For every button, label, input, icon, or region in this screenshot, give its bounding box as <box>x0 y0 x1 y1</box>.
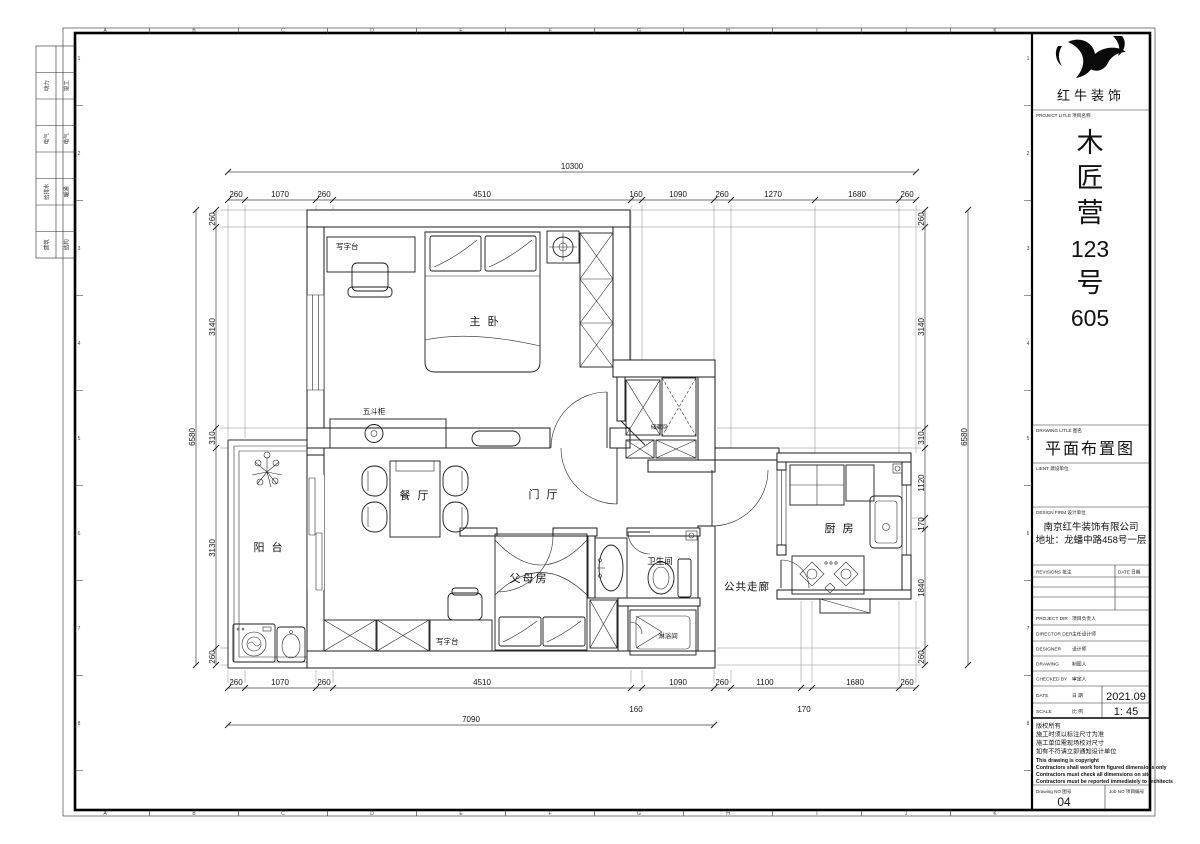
ceiling-light <box>547 231 579 263</box>
stamp-label: 电气 <box>62 133 70 145</box>
grid-letter: F <box>548 811 551 817</box>
signature-strip: 动力 竣工 电气 电气 给排水 暖通 建筑 结构 <box>36 46 76 258</box>
stamp-label: 电气 <box>42 133 50 145</box>
copyright-line: 施工单位需现场校对尺寸 <box>1036 739 1104 747</box>
grid-letter: I <box>816 28 817 34</box>
grid-number: 1 <box>78 56 81 62</box>
copyright-line: 版权所有 <box>1036 722 1061 730</box>
row-label: DIRECTOR DER <box>1036 632 1073 638</box>
window-kitchen-left <box>777 470 786 545</box>
grid-number: 3 <box>78 246 81 252</box>
company-name: 红牛装饰 <box>1057 88 1125 103</box>
project-name-char: 营 <box>1077 198 1104 228</box>
parents-room: 写字台 父母房 <box>324 534 617 651</box>
project-name-char: 605 <box>1071 305 1109 331</box>
dim: 4510 <box>473 190 491 199</box>
room-label-parents: 父母房 <box>510 572 549 585</box>
dim: 1090 <box>669 190 687 199</box>
row-label-cn: 制图人 <box>1072 661 1087 668</box>
stamp-label: 暖通 <box>62 186 70 198</box>
dim-top-total: 10300 <box>561 162 584 171</box>
row-label: DATE <box>1036 693 1048 699</box>
dim: 1840 <box>917 579 926 597</box>
copyright-line: 施工时须以标注尺寸为准 <box>1036 731 1104 739</box>
copyright-line: 如有不符请立即通知设计单位 <box>1036 748 1116 756</box>
desk-parents <box>430 620 492 651</box>
door-master <box>551 392 607 448</box>
drawing-no-value: 04 <box>1057 795 1071 809</box>
dimensions: 10300 260 1070 260 4510 160 1090 260 127… <box>188 162 971 728</box>
grid-number: 7 <box>1027 626 1030 632</box>
row-label: PROJECT DIR <box>1036 616 1068 622</box>
balcony: 阳 台 <box>228 440 307 668</box>
dim: 160 <box>629 705 643 714</box>
row-label-cn: 设计师 <box>1072 646 1087 653</box>
grid-number: 8 <box>1027 721 1030 727</box>
room-label-hall: 门 厅 <box>528 487 559 501</box>
copyright-line-en: This drawing is copyright <box>1036 758 1099 764</box>
grid-letter: C <box>281 811 285 817</box>
grid-marks: A B C D E F G H I J K A B C D E F G H I … <box>75 28 1032 817</box>
dim: 170 <box>797 705 811 714</box>
room-label-shower: 淋浴间 <box>658 631 678 640</box>
room-label-storage: 储藏间 <box>651 423 668 431</box>
job-no-label: Job NO 项目编号 <box>1109 788 1145 795</box>
balcony-slider <box>307 475 324 590</box>
row-label: DESIGNER <box>1036 647 1062 653</box>
grid-number: 4 <box>78 341 81 347</box>
dim: 1680 <box>846 678 864 687</box>
dim: 260 <box>229 190 243 199</box>
window-master-left <box>307 295 324 390</box>
storage-room: 储藏间 <box>621 378 696 458</box>
revisions-label: REVISIONS 批注 <box>1036 569 1072 576</box>
dim: 260 <box>715 190 729 199</box>
project-name-char: 匠 <box>1077 163 1104 193</box>
grid-number: 3 <box>1027 246 1030 252</box>
desk-master-label: 写字台 <box>336 241 359 251</box>
grid-number: 2 <box>1027 151 1030 157</box>
row-label-cn: 项目负责人 <box>1072 615 1096 622</box>
dim: 3130 <box>208 539 217 557</box>
room-label-kitchen: 厨 房 <box>824 522 855 535</box>
grid-number: 7 <box>78 626 81 632</box>
grid-letter: I <box>816 811 817 817</box>
bathroom: 卫生间 <box>595 531 697 598</box>
grid-number: 5 <box>1027 436 1030 442</box>
dim: 310 <box>917 431 926 445</box>
dim: 1090 <box>669 678 687 687</box>
grid-letter: D <box>370 811 374 817</box>
shower-room: 淋浴间 <box>630 610 696 655</box>
outer-border <box>63 28 1155 816</box>
master-bedroom: 写字台 <box>327 231 613 448</box>
dim: 260 <box>229 678 243 687</box>
dim: 260 <box>208 212 217 226</box>
row-label-cn: 日 期 <box>1072 693 1083 699</box>
stamp-label: 给排水 <box>42 183 50 200</box>
dim: 260 <box>917 212 926 226</box>
room-label-dining: 餐 厅 <box>399 488 430 502</box>
dim-right-total: 6580 <box>960 428 969 446</box>
dim: 3140 <box>208 318 217 336</box>
project-name-char: 木 <box>1077 128 1104 158</box>
grid-number: 4 <box>1027 341 1030 347</box>
row-label: CHECKED BY <box>1036 677 1068 683</box>
stove <box>792 556 864 594</box>
dim: 1680 <box>848 190 866 199</box>
grid-number: 6 <box>78 531 81 537</box>
dim: 1070 <box>271 190 289 199</box>
dim: 4510 <box>473 678 491 687</box>
grid-letter: C <box>281 28 285 34</box>
sheet-borders <box>63 28 1155 816</box>
dining-room: 餐 厅 <box>362 461 468 537</box>
grid-letter: H <box>726 28 730 34</box>
dim: 310 <box>208 431 217 445</box>
design-firm-label: DESIGN FIRM 设计单位 <box>1036 509 1086 516</box>
row-label: SCALE <box>1036 709 1052 715</box>
copyright-line-en: Contractors shall work form figured dime… <box>1036 765 1167 771</box>
grid-letter: F <box>548 28 551 34</box>
drawing-title: 平面布置图 <box>1045 440 1135 458</box>
design-firm-name: 南京红牛装饰有限公司 <box>1043 521 1138 533</box>
company-logo <box>1056 36 1126 78</box>
room-label-corridor: 公共走廊 <box>724 580 770 593</box>
dim: 260 <box>317 678 331 687</box>
grid-number: 2 <box>78 151 81 157</box>
dim: 260 <box>900 190 914 199</box>
plant <box>252 452 282 487</box>
copyright-line-en: Contractors must check all dimensions on… <box>1036 772 1151 778</box>
inner-border <box>75 33 1150 810</box>
floor-plan-sheet: A B C D E F G H I J K A B C D E F G H I … <box>0 0 1200 844</box>
row-label: DRAWING <box>1036 662 1059 668</box>
stamp-label: 动力 <box>42 80 50 91</box>
project-name-char: 号 <box>1077 268 1104 298</box>
drawing-sheet: A B C D E F G H I J K A B C D E F G H I … <box>0 0 1200 844</box>
door-kitchen <box>781 560 809 588</box>
desk-parents-label: 写字台 <box>436 636 459 646</box>
room-label-bath: 卫生间 <box>647 556 673 566</box>
grid-letter: G <box>637 28 641 34</box>
dim: 3140 <box>917 318 926 336</box>
grid-number: 8 <box>78 721 81 727</box>
room-label-balcony: 阳 台 <box>253 540 284 554</box>
revisions-date-label: DATE 日期 <box>1118 570 1141 576</box>
grid-letter: D <box>370 28 374 34</box>
client-label: LIENT 建设单位 <box>1036 465 1069 472</box>
dim: 260 <box>900 678 914 687</box>
grid-number: 5 <box>78 436 81 442</box>
dim: 1270 <box>764 190 782 199</box>
grid-letter: G <box>637 811 641 817</box>
grid-number: 1 <box>1027 56 1030 62</box>
grid-letter: H <box>726 811 730 817</box>
floor-plan: 阳 台 写字台 <box>220 205 921 683</box>
window-kitchen-right <box>902 485 911 555</box>
dim: 260 <box>317 190 331 199</box>
design-firm-address: 地址：龙蟠中路458号一层 <box>1036 534 1147 546</box>
dim: 1100 <box>756 678 774 687</box>
drawing-title-label: DRAWING LITLE 图名 <box>1036 427 1082 434</box>
room-label-master: 主 卧 <box>469 315 500 328</box>
stamp-label: 竣工 <box>62 80 70 92</box>
dim: 1070 <box>271 678 289 687</box>
scale-value: 1: 45 <box>1114 706 1138 718</box>
dim: 1120 <box>917 474 926 492</box>
title-block: 红牛装饰 PROJECT LITLE 项目名称 木 匠 营 123 号 605 … <box>1032 36 1173 810</box>
row-label-cn: 审定人 <box>1072 676 1087 683</box>
row-label-cn: 比 例 <box>1072 708 1083 715</box>
date-value: 2021.09 <box>1106 691 1146 703</box>
grid-number: 6 <box>1027 531 1030 537</box>
dim: 260 <box>208 650 217 664</box>
door-entry <box>712 470 768 526</box>
chest-label: 五斗柜 <box>363 406 386 416</box>
kitchen-sink <box>870 496 902 548</box>
stamp-label: 建筑 <box>42 239 50 251</box>
dim: 160 <box>629 190 643 199</box>
bed-master <box>425 232 540 372</box>
wardrobe-master <box>580 233 613 367</box>
dim-left-total: 6580 <box>188 428 197 446</box>
dim: 260 <box>715 678 729 687</box>
dim: 170 <box>917 517 926 531</box>
row-label-cn: 主任设计师 <box>1072 631 1096 638</box>
project-label: PROJECT LITLE 项目名称 <box>1036 112 1091 119</box>
dim-bottom-total: 7090 <box>462 715 480 724</box>
dim: 260 <box>917 650 926 664</box>
door-hall <box>561 448 617 504</box>
chair-parents <box>448 593 482 620</box>
stamp-label: 结构 <box>62 239 70 251</box>
copyright-line-en: Contractors must be reported immediately… <box>1036 779 1173 785</box>
project-name-char: 123 <box>1071 236 1109 262</box>
floor-drain <box>893 464 902 473</box>
